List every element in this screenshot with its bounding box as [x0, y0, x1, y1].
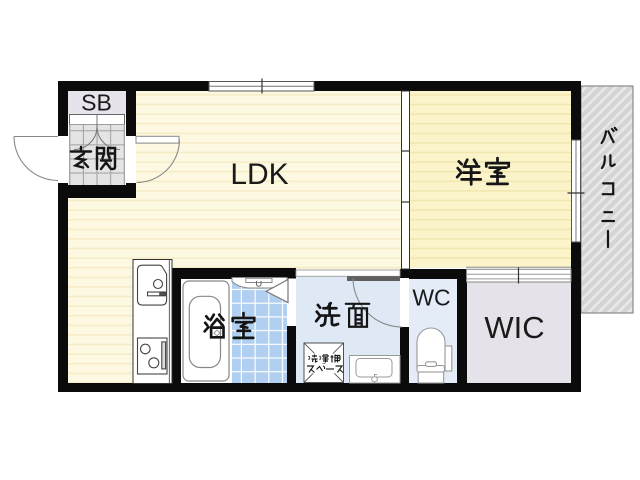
- svg-text:SB: SB: [81, 90, 112, 116]
- svg-text:WIC: WIC: [484, 310, 544, 345]
- svg-text:LDK: LDK: [230, 158, 288, 191]
- svg-text:WC: WC: [412, 285, 450, 311]
